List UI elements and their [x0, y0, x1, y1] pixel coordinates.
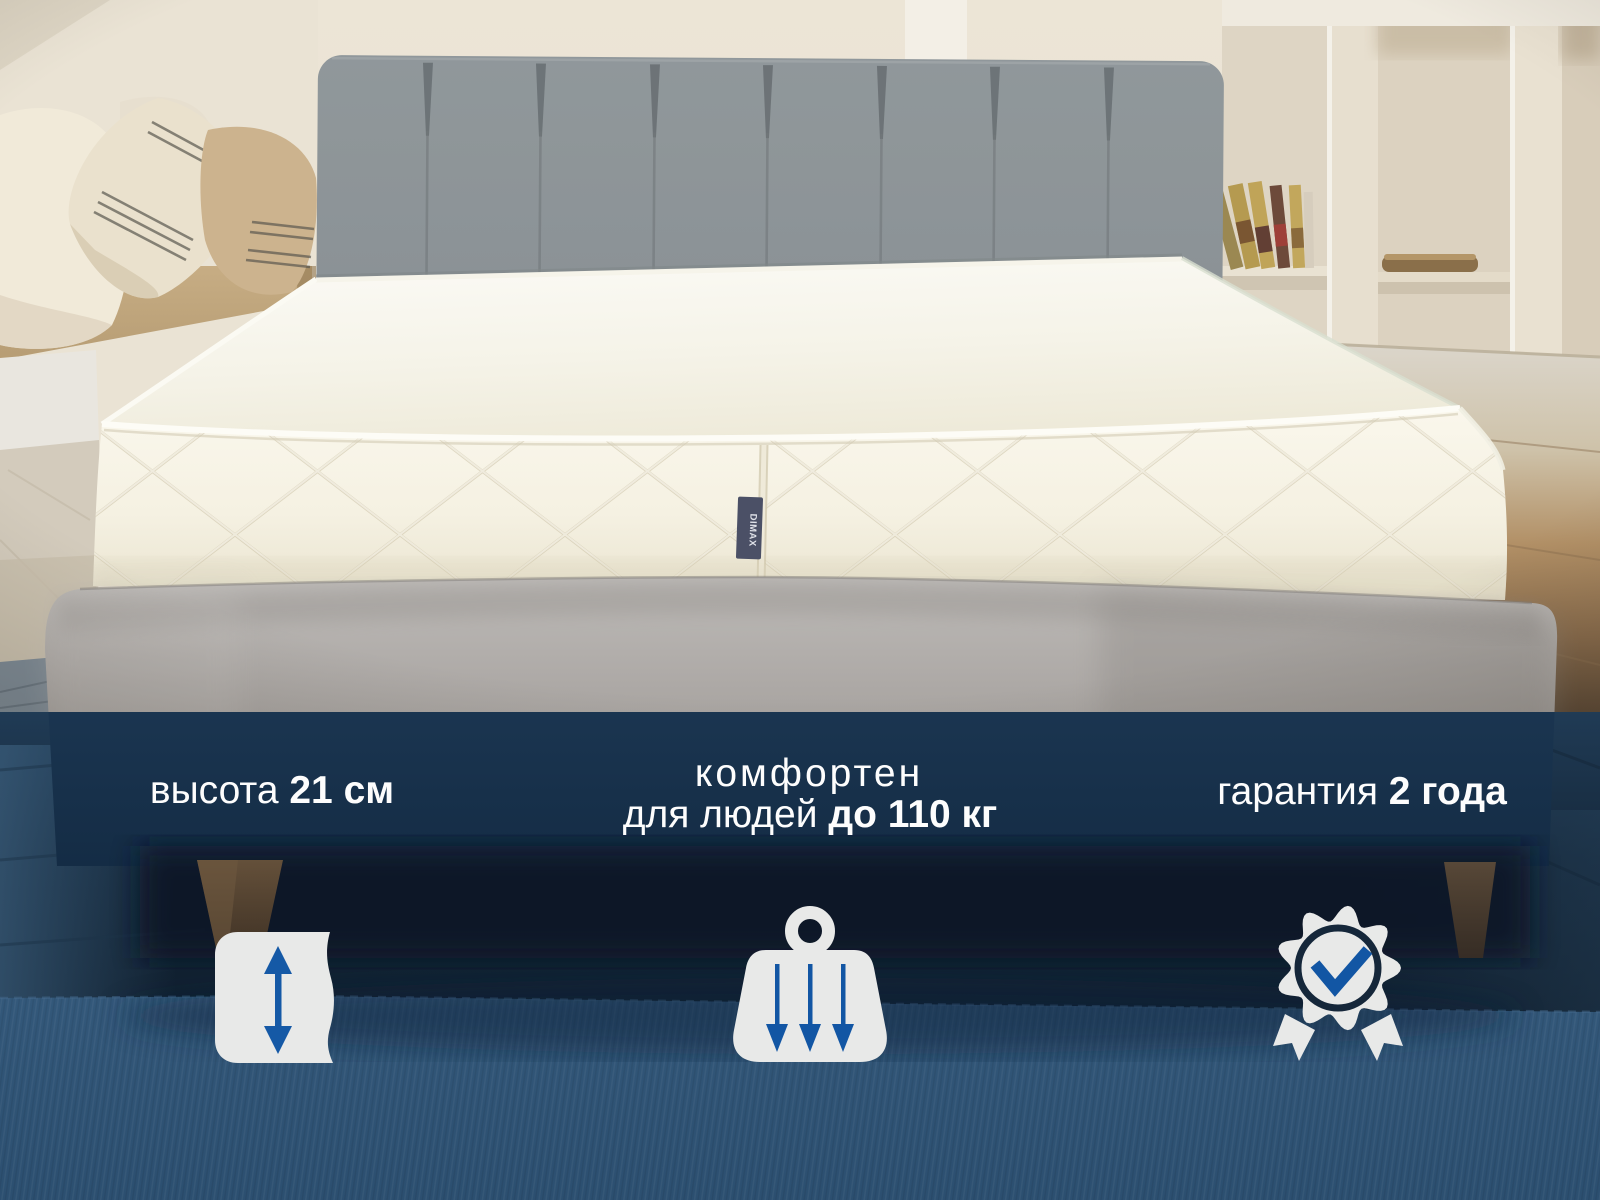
svg-text:комфортен: комфортен — [695, 752, 923, 795]
svg-text:для людей до 110 кг: для людей до 110 кг — [623, 793, 998, 836]
svg-text:гарантия 2 года: гарантия 2 года — [1217, 770, 1507, 813]
svg-text:высота 21 см: высота 21 см — [150, 769, 394, 812]
